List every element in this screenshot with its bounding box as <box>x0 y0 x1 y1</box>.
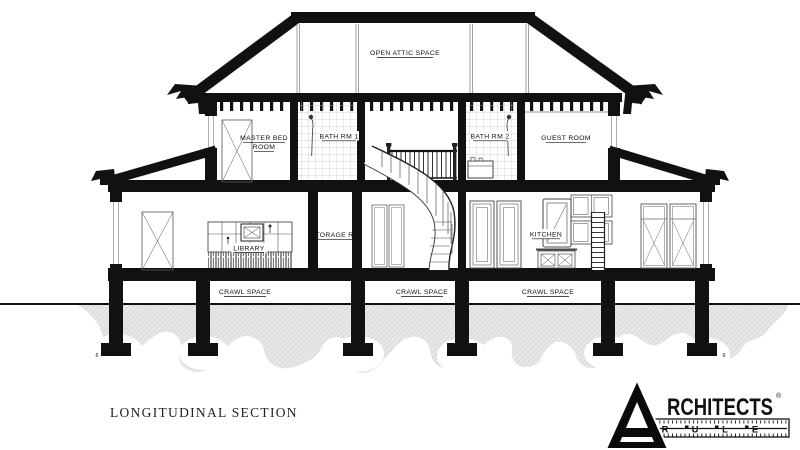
base-cabinets <box>536 250 577 269</box>
footing-marker-left: 6 <box>95 353 98 359</box>
living-room-windows <box>641 204 696 268</box>
footing-marker-right: 6 <box>722 353 725 359</box>
crawl-space-label-right: CRAWL SPACE <box>522 289 574 296</box>
guest-room-label: GUEST ROOM <box>541 135 591 142</box>
stair-hall-window <box>372 205 404 267</box>
ruler-letter-e: E <box>752 425 758 436</box>
ruler-graphic: R U L E <box>641 419 789 437</box>
bath1-label: BATH RM 1 <box>320 134 359 141</box>
ruler-letter-r: R <box>662 425 669 436</box>
range-hood <box>543 199 571 247</box>
library-label: LIBRARY <box>233 246 265 253</box>
architects-rule-logo: R U L E RCHITECTS ® <box>606 380 789 449</box>
bath2-vanity <box>468 158 493 179</box>
master-bedroom-door <box>222 120 252 182</box>
master-bedroom-label-2: ROOM <box>253 144 276 151</box>
entry-door <box>142 212 173 270</box>
registered-trademark-symbol: ® <box>776 392 782 400</box>
crawl-space-label-center: CRAWL SPACE <box>396 289 448 296</box>
architects-a-mark <box>606 380 668 449</box>
ruler-letter-l: L <box>722 425 728 436</box>
kitchen: KITCHEN <box>470 195 612 270</box>
crawl-space-labels: CRAWL SPACE CRAWL SPACE CRAWL SPACE <box>219 289 574 297</box>
architects-wordmark: RCHITECTS <box>667 394 773 421</box>
kitchen-label: KITCHEN <box>530 232 562 239</box>
crawl-space-label-left: CRAWL SPACE <box>219 289 271 296</box>
ruler-letter-u: U <box>692 425 699 436</box>
bath2-label: BATH RM 2 <box>471 134 510 141</box>
longitudinal-section-drawing: 6 6 CRAWL SPACE CRAWL SPACE CRAWL SPACE <box>0 0 800 450</box>
storage-room-label: STORAGE RM <box>310 232 359 239</box>
soil-hatch-area <box>78 305 788 374</box>
master-bedroom-label: MASTER BED <box>240 135 288 142</box>
library-bookcase: LIBRARY <box>208 222 292 268</box>
first-floor: LIBRARY STORAGE RM <box>110 185 712 270</box>
attic-label: OPEN ATTIC SPACE <box>370 50 440 57</box>
kitchen-ladder <box>591 212 605 270</box>
drawing-title: LONGITUDINAL SECTION <box>110 405 298 420</box>
french-doors <box>470 201 521 268</box>
